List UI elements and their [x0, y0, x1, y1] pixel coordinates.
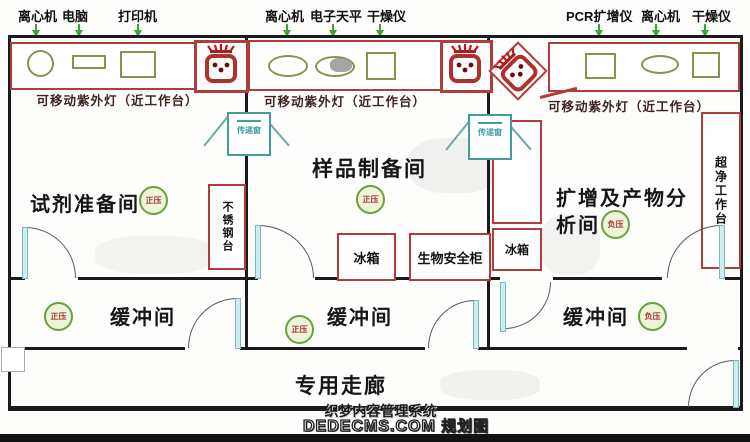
- dryer-shape: [692, 52, 720, 78]
- down-arrow-icon: [379, 24, 381, 31]
- wall-segment: [553, 277, 662, 280]
- door-arc: [258, 225, 314, 278]
- wall-segment: [240, 347, 425, 350]
- down-arrow-icon: [332, 24, 334, 31]
- pressure-badge-sample: 正压: [356, 185, 385, 214]
- smudge: [95, 236, 215, 274]
- corridor-name: 专用走廊: [295, 370, 387, 400]
- door-leaf: [733, 360, 739, 408]
- door-leaf: [473, 300, 479, 349]
- pressure-badge-buffer2: 正压: [285, 315, 314, 344]
- door-arc: [688, 360, 735, 407]
- centrifuge-shape: [641, 55, 679, 74]
- printer-shape: [120, 51, 156, 78]
- smudge: [440, 370, 540, 400]
- equip-label-dryer-1: 干燥仪: [367, 6, 406, 25]
- equip-label-dryer-2: 干燥仪: [692, 6, 731, 25]
- watermark-suffix: 规划图: [441, 418, 489, 435]
- door-arc: [428, 300, 475, 348]
- room-name-sample: 样品制备间: [312, 153, 427, 183]
- centrifuge-shape: [27, 50, 54, 77]
- down-arrow-icon: [655, 24, 657, 31]
- pass-box-2: 传递窗: [468, 114, 512, 160]
- uv-lamp-note-room2: 可移动紫外灯（近工作台）: [252, 91, 438, 110]
- down-arrow-icon: [598, 24, 600, 31]
- sink-icon: [488, 42, 543, 97]
- wall-left-lower: [8, 370, 11, 411]
- down-arrow-icon: [286, 24, 288, 31]
- bottom-band: [0, 434, 750, 442]
- down-arrow-icon: [704, 24, 706, 31]
- door-leaf: [500, 282, 506, 332]
- uv-lamp-note-room1: 可移动紫外灯（近工作台）: [20, 90, 215, 109]
- wall-segment: [478, 347, 687, 350]
- door-leaf: [22, 227, 28, 279]
- watermark-line2: DEDECMS.COM 规划图: [303, 415, 489, 436]
- down-arrow-icon: [78, 24, 80, 31]
- pass-box-1: 传递窗: [227, 112, 271, 156]
- dryer-shape: [366, 52, 396, 80]
- equip-label-balance: 电子天平: [310, 6, 362, 25]
- pcr-lab-floorplan: 离心机 电脑 打印机 离心机 电子天平 干燥仪 PCR扩增仪 离心机 干燥仪: [0, 0, 750, 442]
- computer-shape: [72, 55, 106, 69]
- buffer2-name: 缓冲间: [327, 301, 393, 330]
- watermark-dedecms: DEDECMS.COM: [303, 418, 436, 435]
- pressure-badge-amplification: 负压: [601, 210, 630, 239]
- bio-safety-cabinet: 生物安全柜: [409, 233, 491, 281]
- buffer3-name: 缓冲间: [563, 301, 629, 330]
- pressure-badge-buffer3: 负压: [638, 302, 667, 331]
- equip-label-computer: 电脑: [62, 6, 88, 25]
- fridge-room3: 冰箱: [492, 228, 542, 271]
- door-arc: [504, 282, 551, 329]
- pass-box-window: [478, 122, 502, 124]
- stainless-table: 不锈钢台: [208, 184, 246, 270]
- pressure-badge-buffer1: 正压: [44, 302, 73, 331]
- wall-segment: [725, 277, 743, 280]
- pressure-badge-reagent: 正压: [139, 186, 168, 215]
- wall-segment: [738, 347, 743, 350]
- equip-label-pcr: PCR扩增仪: [566, 6, 632, 25]
- corridor-side-opening: [1, 347, 25, 372]
- down-arrow-icon: [137, 24, 139, 31]
- wall-top: [8, 35, 743, 38]
- room-name-reagent: 试剂准备间: [30, 188, 140, 217]
- door-leaf: [719, 225, 725, 279]
- door-arc: [188, 298, 237, 348]
- equip-label-centrifuge-2: 离心机: [265, 6, 304, 25]
- equip-label-printer: 打印机: [118, 6, 157, 25]
- sink-icon: [447, 43, 483, 85]
- pass-box-label: 传递窗: [237, 126, 261, 135]
- sink-icon: [203, 43, 239, 85]
- equip-label-centrifuge-3: 离心机: [641, 6, 680, 25]
- pcr-machine-shape: [585, 53, 616, 79]
- centrifuge-shape: [268, 55, 308, 77]
- buffer1-name: 缓冲间: [110, 301, 176, 330]
- door-leaf: [235, 298, 241, 349]
- wall-segment: [8, 347, 185, 350]
- wall-segment: [78, 277, 258, 280]
- smudge: [330, 58, 352, 72]
- equip-label-centrifuge-1: 离心机: [18, 6, 57, 25]
- door-leaf: [255, 225, 261, 279]
- down-arrow-icon: [35, 24, 37, 31]
- pass-box-label: 传递窗: [478, 128, 502, 137]
- fridge-room2: 冰箱: [337, 233, 396, 281]
- door-arc: [25, 227, 76, 278]
- pass-box-window: [237, 120, 261, 122]
- uv-lamp-note-room3: 可移动紫外灯（近工作台）: [545, 96, 713, 115]
